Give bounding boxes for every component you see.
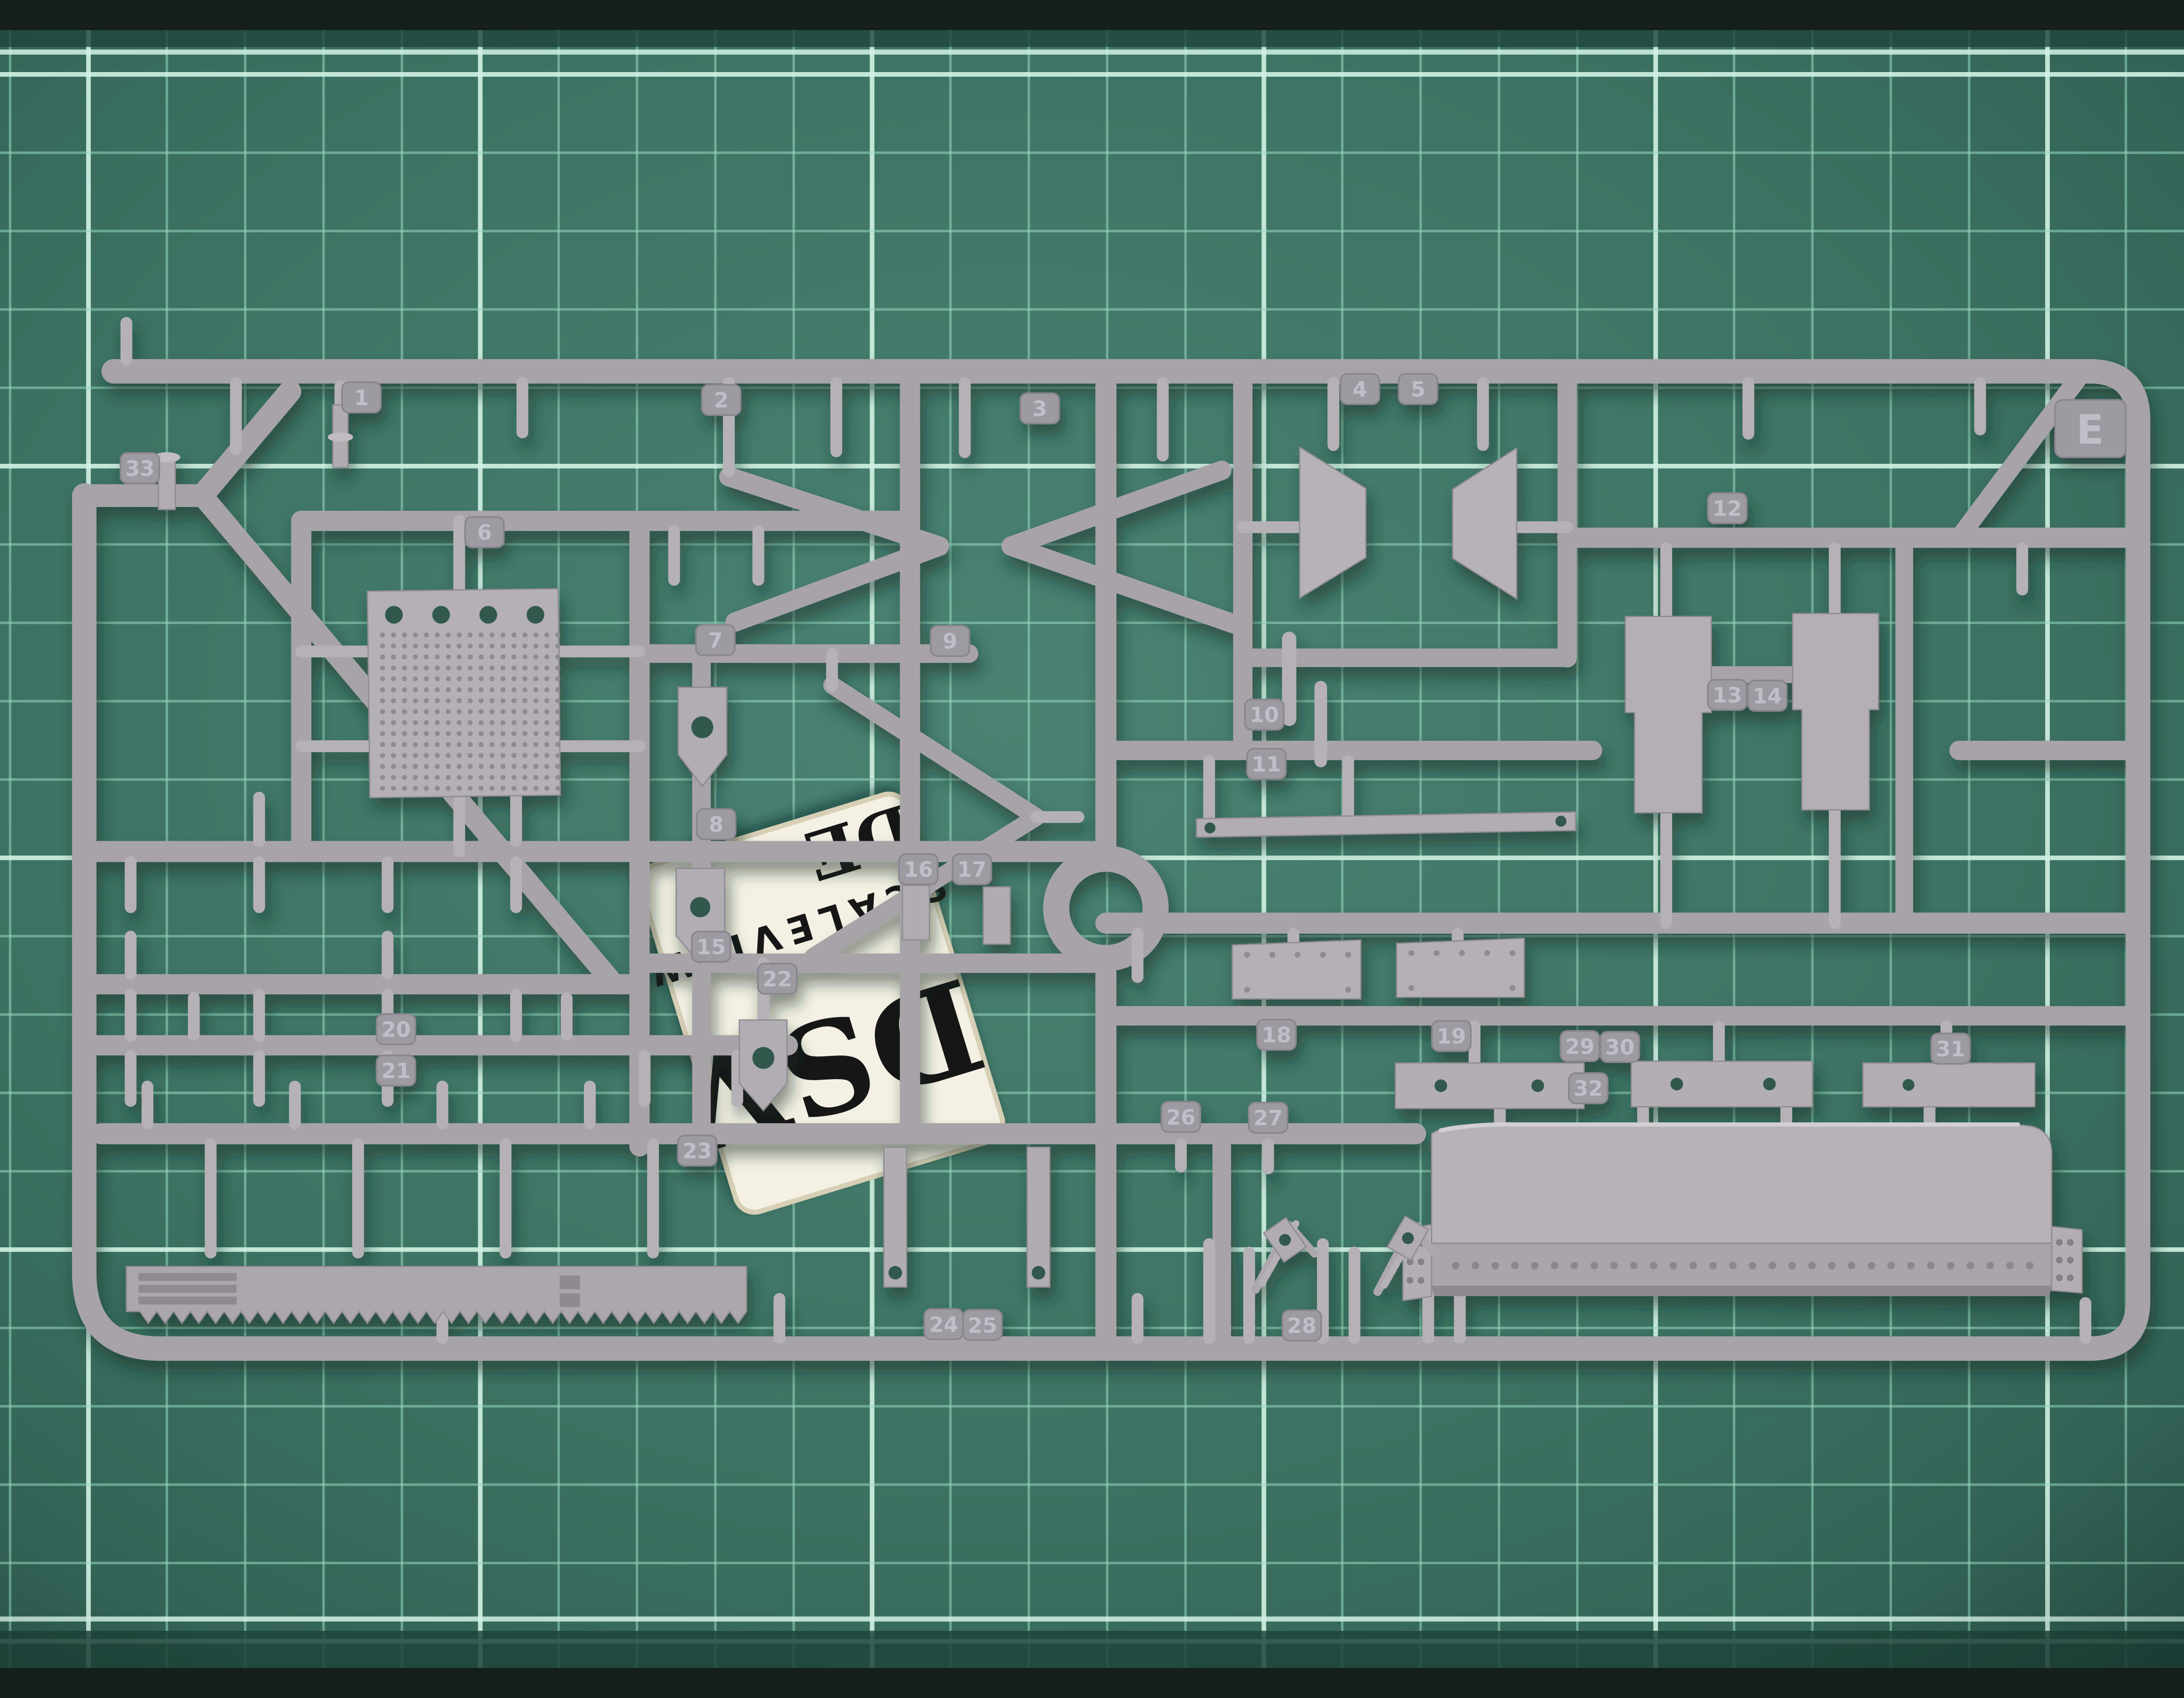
photo-stage: DSV SCALEVIEW DE 12345678910111213141516… bbox=[0, 0, 2184, 1698]
sprue-photo: DSV SCALEVIEW DE 12345678910111213141516… bbox=[0, 30, 2184, 1668]
vignette-overlay bbox=[0, 30, 2184, 1668]
